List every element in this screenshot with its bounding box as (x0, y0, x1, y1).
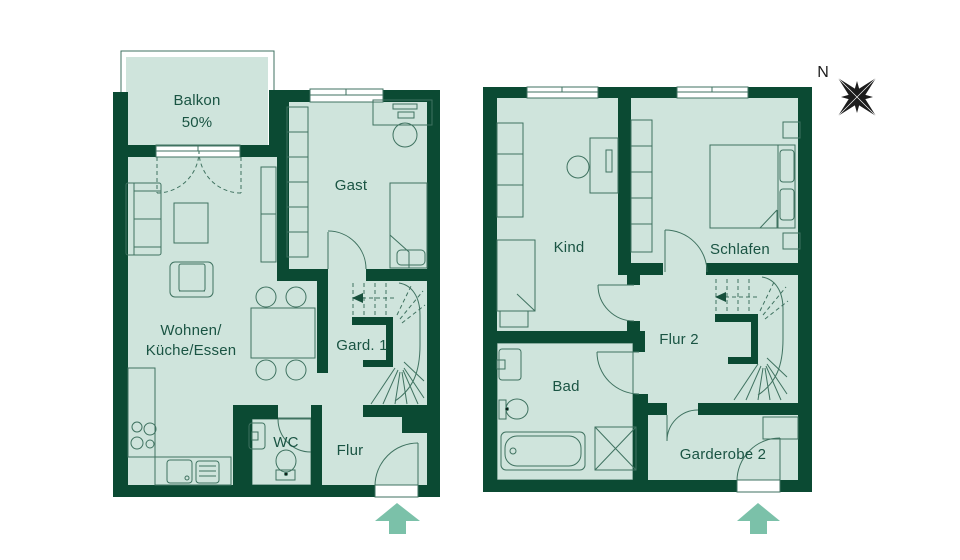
label-gard1: Gard. 1 (336, 337, 387, 354)
entrance-arrow-icon (737, 503, 780, 534)
label-balkon-pct: 50% (182, 114, 213, 131)
label-schlafen: Schlafen (710, 241, 770, 258)
label-flur: Flur (337, 442, 364, 459)
label-wohnen-1: Wohnen/ (160, 322, 222, 339)
label-balkon: Balkon (173, 92, 220, 109)
label-garderobe2: Garderobe 2 (680, 446, 766, 463)
entrance-arrow-icon (375, 503, 420, 534)
label-bad: Bad (552, 378, 579, 395)
window-schlafen (677, 87, 748, 98)
floorplan-page: Balkon 50% Gast Wohnen/ Küche/Essen Gard… (0, 0, 960, 560)
label-gast: Gast (335, 177, 368, 194)
floorplan-canvas: Balkon 50% Gast Wohnen/ Küche/Essen Gard… (0, 0, 960, 560)
label-wc: WC (273, 434, 298, 451)
compass-north-label: N (817, 64, 829, 81)
entrance-threshold-lower (375, 485, 418, 497)
label-flur2: Flur 2 (659, 331, 699, 348)
entrance-threshold-upper (737, 480, 780, 492)
window-gast (310, 89, 383, 102)
plan-upper: Kind Schlafen Flur 2 Bad Garderobe 2 (483, 87, 812, 534)
plan-lower: Balkon 50% Gast Wohnen/ Küche/Essen Gard… (113, 51, 440, 534)
window-kind (527, 87, 598, 98)
compass-rose-icon (838, 78, 876, 116)
label-wohnen-2: Küche/Essen (146, 342, 237, 359)
compass: N (817, 64, 876, 116)
label-kind: Kind (554, 239, 585, 256)
balcony-door-threshold (156, 145, 240, 157)
